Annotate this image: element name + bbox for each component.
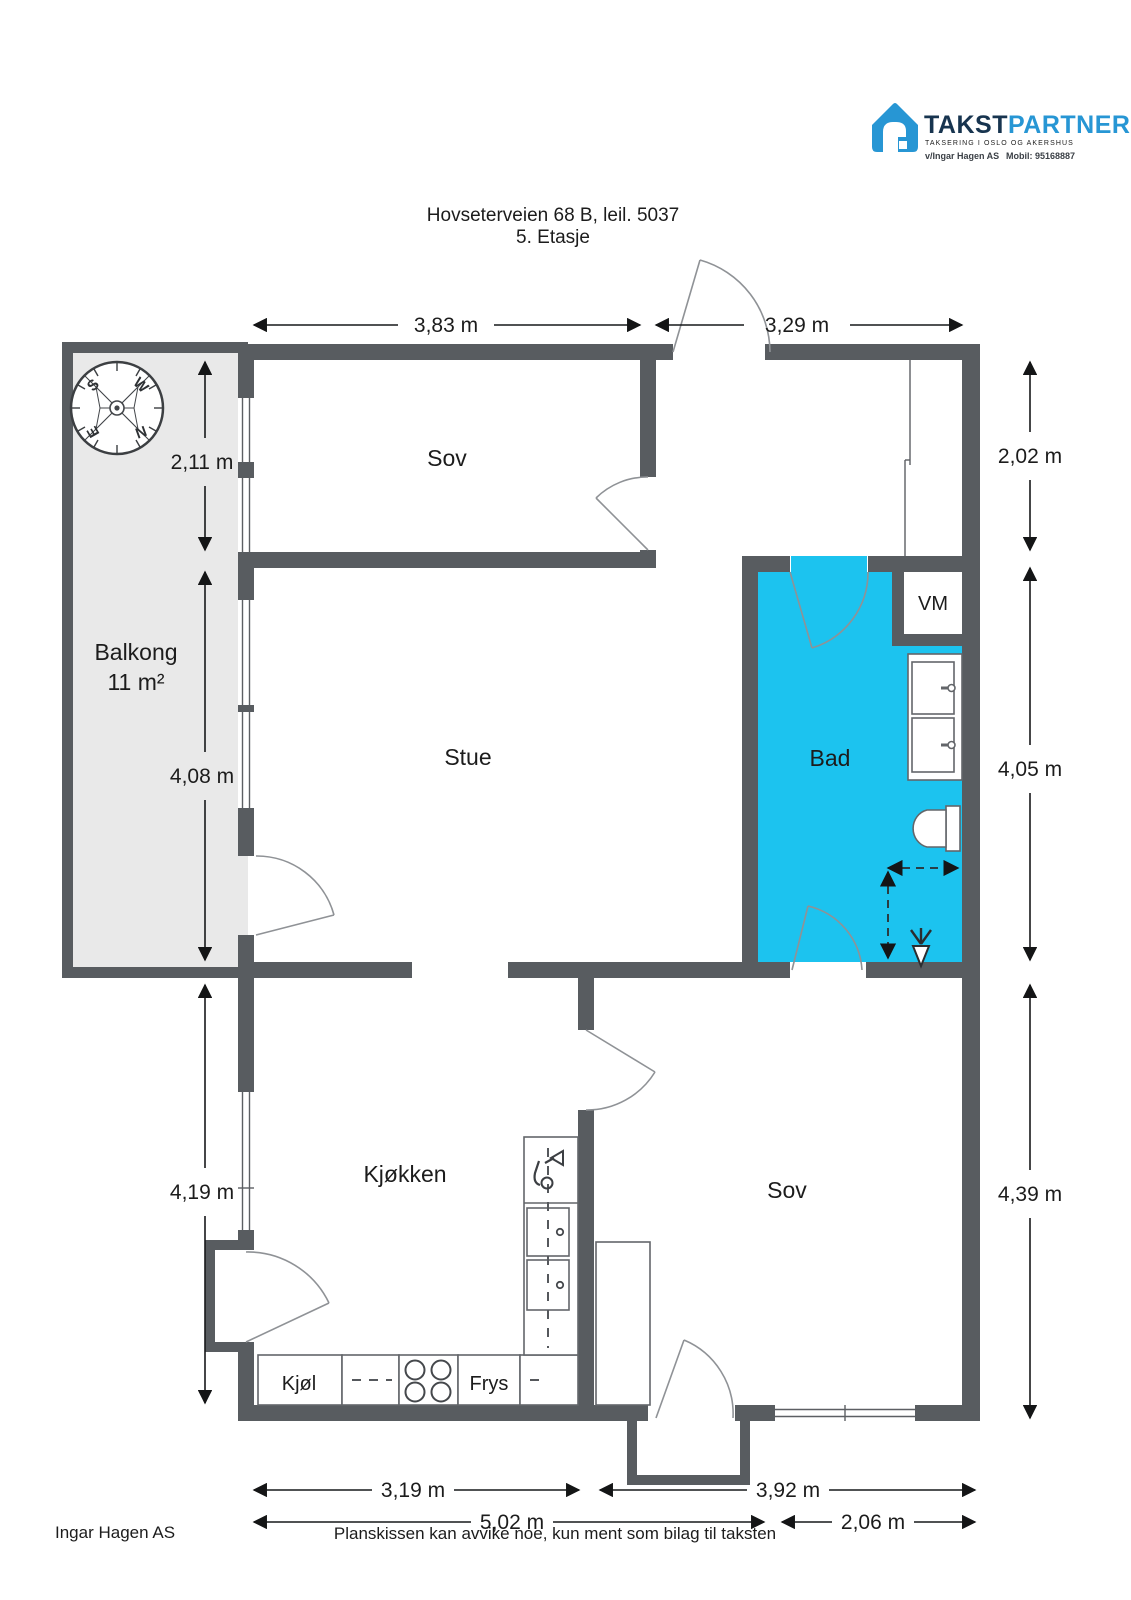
footer-company: Ingar Hagen AS — [55, 1523, 175, 1542]
freezer-label: Frys — [470, 1373, 509, 1395]
wardrobe-box — [596, 1242, 650, 1405]
compass-icon: S W E N — [71, 362, 163, 454]
dim-top-left: 3,83 m — [414, 314, 478, 337]
logo-contact-mobile: Mobil: 95168887 — [1006, 151, 1075, 161]
svg-text:TAKSTPARTNER: TAKSTPARTNER — [924, 111, 1130, 139]
plan-floor: 5. Etasje — [516, 227, 590, 248]
footer-disclaimer: Planskissen kan avvike noe, kun ment som… — [334, 1524, 776, 1543]
counter-column — [524, 1137, 578, 1355]
dim-bottom-total-right: 2,06 m — [841, 1511, 905, 1534]
stove-icon — [399, 1355, 458, 1405]
bedroom-top-door — [596, 477, 648, 550]
dim-left-middle: 4,08 m — [170, 765, 234, 788]
dim-left-upper: 2,11 m — [171, 451, 234, 474]
sink-counter — [908, 654, 962, 780]
kitchen-label: Kjøkken — [363, 1161, 446, 1187]
dim-right-upper: 2,02 m — [998, 445, 1062, 468]
balcony-area-label: 11 m² — [107, 669, 164, 695]
dim-bottom-bedroom: 3,92 m — [756, 1479, 820, 1502]
hall-closet-sliding-door — [905, 360, 910, 556]
window-bedroom-top-2 — [238, 478, 254, 552]
plan-address: Hovseterveien 68 B, leil. 5037 — [427, 205, 679, 226]
dim-right-lower: 4,39 m — [998, 1183, 1062, 1206]
corner-counter-box — [520, 1355, 578, 1405]
living-label: Stue — [444, 744, 491, 770]
dim-bottom-kitchen: 3,19 m — [381, 1479, 445, 1502]
kitchen-balcony-door — [246, 1252, 329, 1342]
fridge-label: Kjøl — [282, 1373, 316, 1395]
window-bedroom-bottom — [775, 1405, 915, 1421]
takstpartner-logo: TAKSTPARTNER TAKSERING I OSLO OG AKERSHU… — [872, 103, 1130, 161]
dim-right-middle: 4,05 m — [998, 758, 1062, 781]
balcony-label: Balkong — [94, 639, 177, 665]
window-living-2 — [238, 712, 254, 808]
bedroom-top-label: Sov — [427, 445, 467, 471]
logo-tagline: TAKSERING I OSLO OG AKERSHUS — [925, 140, 1074, 147]
logo-contact-name: v/Ingar Hagen AS — [925, 151, 999, 161]
window-bedroom-top-1 — [238, 398, 254, 462]
bedroom-bottom-door — [586, 1030, 655, 1110]
dim-left-lower: 4,19 m — [170, 1181, 234, 1204]
bedroom-bottom-label: Sov — [767, 1177, 807, 1203]
bedroom-balcony-door — [656, 1340, 733, 1418]
entrance-door — [673, 260, 770, 352]
dim-top-right: 3,29 m — [765, 314, 829, 337]
floorplan-page: TAKSTPARTNER TAKSERING I OSLO OG AKERSHU… — [0, 0, 1131, 1600]
bath-label: Bad — [810, 745, 851, 771]
balcony-door-living — [256, 856, 334, 935]
window-living-1 — [238, 600, 254, 705]
window-kitchen — [238, 1092, 254, 1230]
toilet-icon — [913, 806, 960, 851]
vm-label: VM — [918, 593, 948, 615]
logo-brand-secondary: PARTNER — [1008, 111, 1130, 139]
logo-brand-primary: TAKST — [924, 111, 1008, 139]
